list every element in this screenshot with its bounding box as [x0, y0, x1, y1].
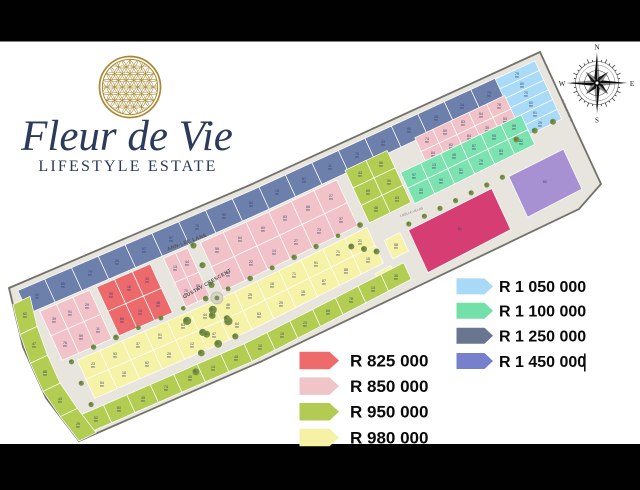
svg-text:R 1 450 000: R 1 450 000 [499, 354, 586, 371]
svg-text:E: E [630, 80, 634, 88]
svg-text:R 980 000: R 980 000 [350, 428, 428, 447]
svg-text:R 1 250 000: R 1 250 000 [499, 329, 586, 346]
svg-text:R 1 050 000: R 1 050 000 [499, 279, 586, 296]
svg-text:R 1 100 000: R 1 100 000 [499, 304, 586, 321]
svg-text:Fleur de Vie: Fleur de Vie [20, 113, 233, 160]
svg-text:S: S [595, 117, 599, 125]
svg-text:R 850 000: R 850 000 [350, 377, 428, 396]
svg-text:R 825 000: R 825 000 [350, 351, 428, 370]
svg-text:N: N [594, 44, 599, 52]
svg-text:80: 80 [543, 180, 547, 184]
svg-text:R 950 000: R 950 000 [350, 403, 428, 422]
svg-text:LIFESTYLE ESTATE: LIFESTYLE ESTATE [38, 158, 217, 175]
svg-text:81: 81 [458, 227, 462, 231]
svg-text:W: W [559, 80, 566, 88]
